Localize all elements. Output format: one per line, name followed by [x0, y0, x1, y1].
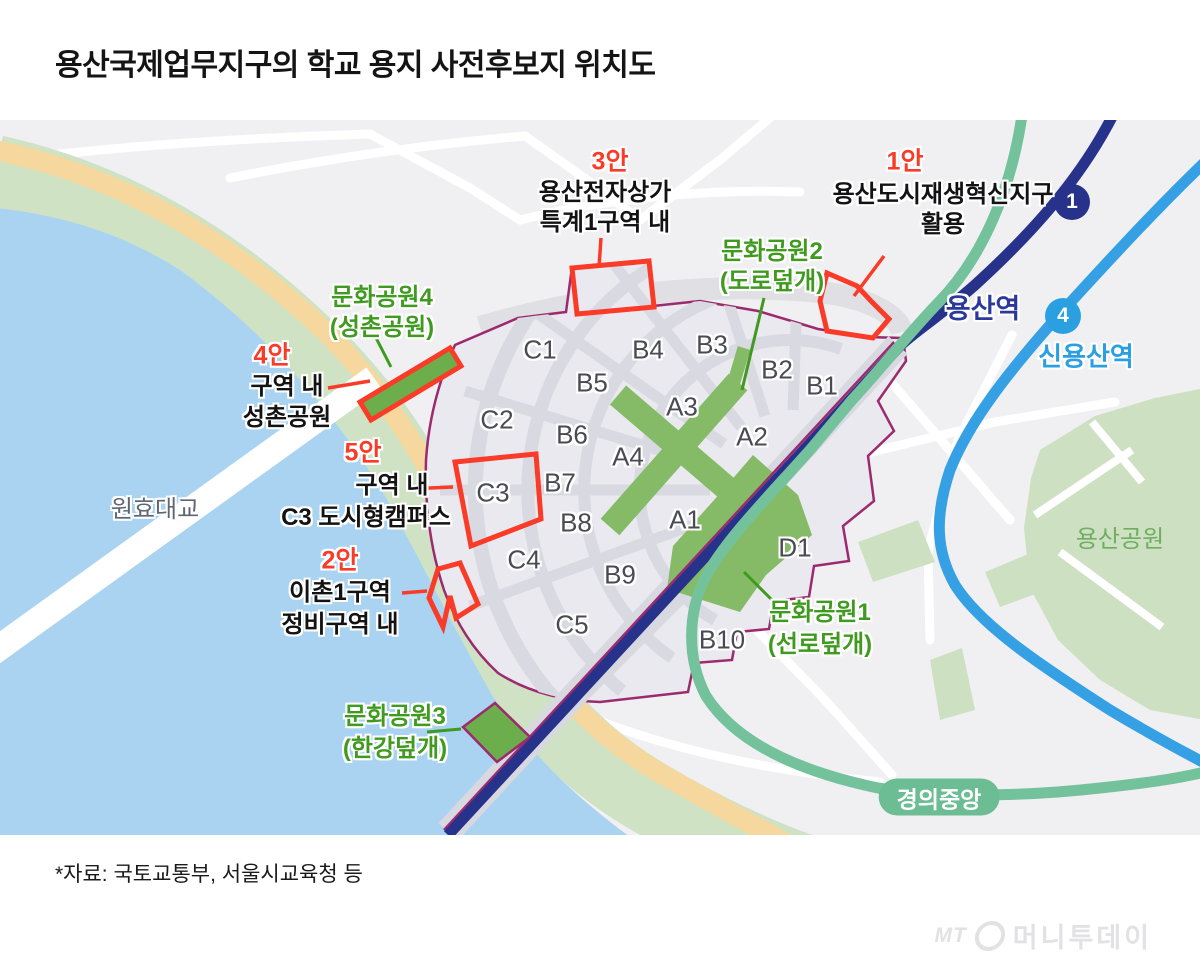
publisher-name: 머니투데이: [1013, 916, 1152, 955]
plan5-line1: 구역 내: [356, 473, 429, 499]
park1-line1: 문화공원1: [769, 600, 871, 626]
park1-line2: (선로덮개): [768, 632, 872, 658]
page-title: 용산국제업무지구의 학교 용지 사전후보지 위치도: [55, 40, 655, 84]
block-label-b5: B5: [576, 369, 608, 398]
block-label-c4: C4: [507, 546, 540, 575]
block-label-b8: B8: [560, 509, 592, 538]
publisher-abbr: MT: [934, 924, 966, 948]
block-label-c5: C5: [555, 611, 588, 640]
block-label-b2: B2: [761, 356, 793, 385]
block-label-b10: B10: [699, 626, 745, 655]
park2-line2: (도로덮개): [720, 269, 824, 295]
plan3-tag: 3안: [592, 148, 629, 176]
plan3-line2: 특계1구역 내: [540, 210, 670, 236]
plan5-line2: C3 도시형캠퍼스: [281, 505, 451, 531]
block-label-b6: B6: [556, 421, 588, 450]
block-label-a2: A2: [736, 423, 768, 452]
publisher-logo-icon: [973, 921, 1007, 951]
block-label-c3: C3: [476, 479, 509, 508]
plan4-line1: 구역 내: [251, 374, 324, 400]
line1-badge: 1: [1054, 184, 1090, 220]
plan2-line1: 이촌1구역: [289, 580, 391, 606]
source-note: *자료: 국토교통부, 서울시교육청 등: [55, 858, 363, 888]
block-label-b9: B9: [604, 561, 636, 590]
plan1-line1: 용산도시재생혁신지구: [833, 182, 1054, 208]
plan1-line2: 활용: [921, 212, 965, 238]
plan3-line1: 용산전자상가: [539, 180, 671, 206]
block-label-a1: A1: [669, 506, 701, 535]
block-label-b7: B7: [544, 469, 576, 498]
plan4-tag: 4안: [254, 342, 291, 370]
block-label-b1: B1: [806, 372, 838, 401]
block-label-c1: C1: [523, 336, 556, 365]
park4-line1: 문화공원4: [331, 285, 433, 311]
park3-line2: (한강덮개): [343, 736, 447, 762]
block-label-c2: C2: [480, 406, 513, 435]
plan1-tag: 1안: [887, 148, 924, 176]
park2-line1: 문화공원2: [721, 239, 823, 265]
publisher-watermark: MT 머니투데이: [934, 916, 1152, 955]
gyeongui-jungang-pill: 경의중앙: [879, 779, 1000, 816]
plan2-tag: 2안: [322, 547, 359, 575]
infographic-page: 용산국제업무지구의 학교 용지 사전후보지 위치도: [0, 0, 1200, 962]
sinyongsan-station-label: 신용산역: [1038, 343, 1134, 372]
line4-badge: 4: [1045, 298, 1081, 334]
block-label-a4: A4: [612, 443, 644, 472]
plan5-tag: 5안: [345, 439, 382, 467]
park4-line2: (성촌공원): [330, 315, 434, 341]
map-canvas: C1 B4 B3 B2 B1 B5 A3 C2 B6 A4 A2 B7 C3 B…: [0, 120, 1200, 835]
plan4-line2: 성촌공원: [243, 405, 331, 431]
block-label-a3: A3: [666, 393, 698, 422]
plan2-line2: 정비구역 내: [281, 612, 398, 638]
bridge-label: 원효대교: [111, 497, 199, 523]
yongsan-park-label: 용산공원: [1076, 527, 1164, 553]
block-label-b3: B3: [696, 331, 728, 360]
block-label-b4: B4: [632, 336, 664, 365]
park3-line1: 문화공원3: [344, 704, 446, 730]
yongsan-station-label: 용산역: [946, 295, 1021, 325]
block-label-d1: D1: [778, 534, 811, 563]
